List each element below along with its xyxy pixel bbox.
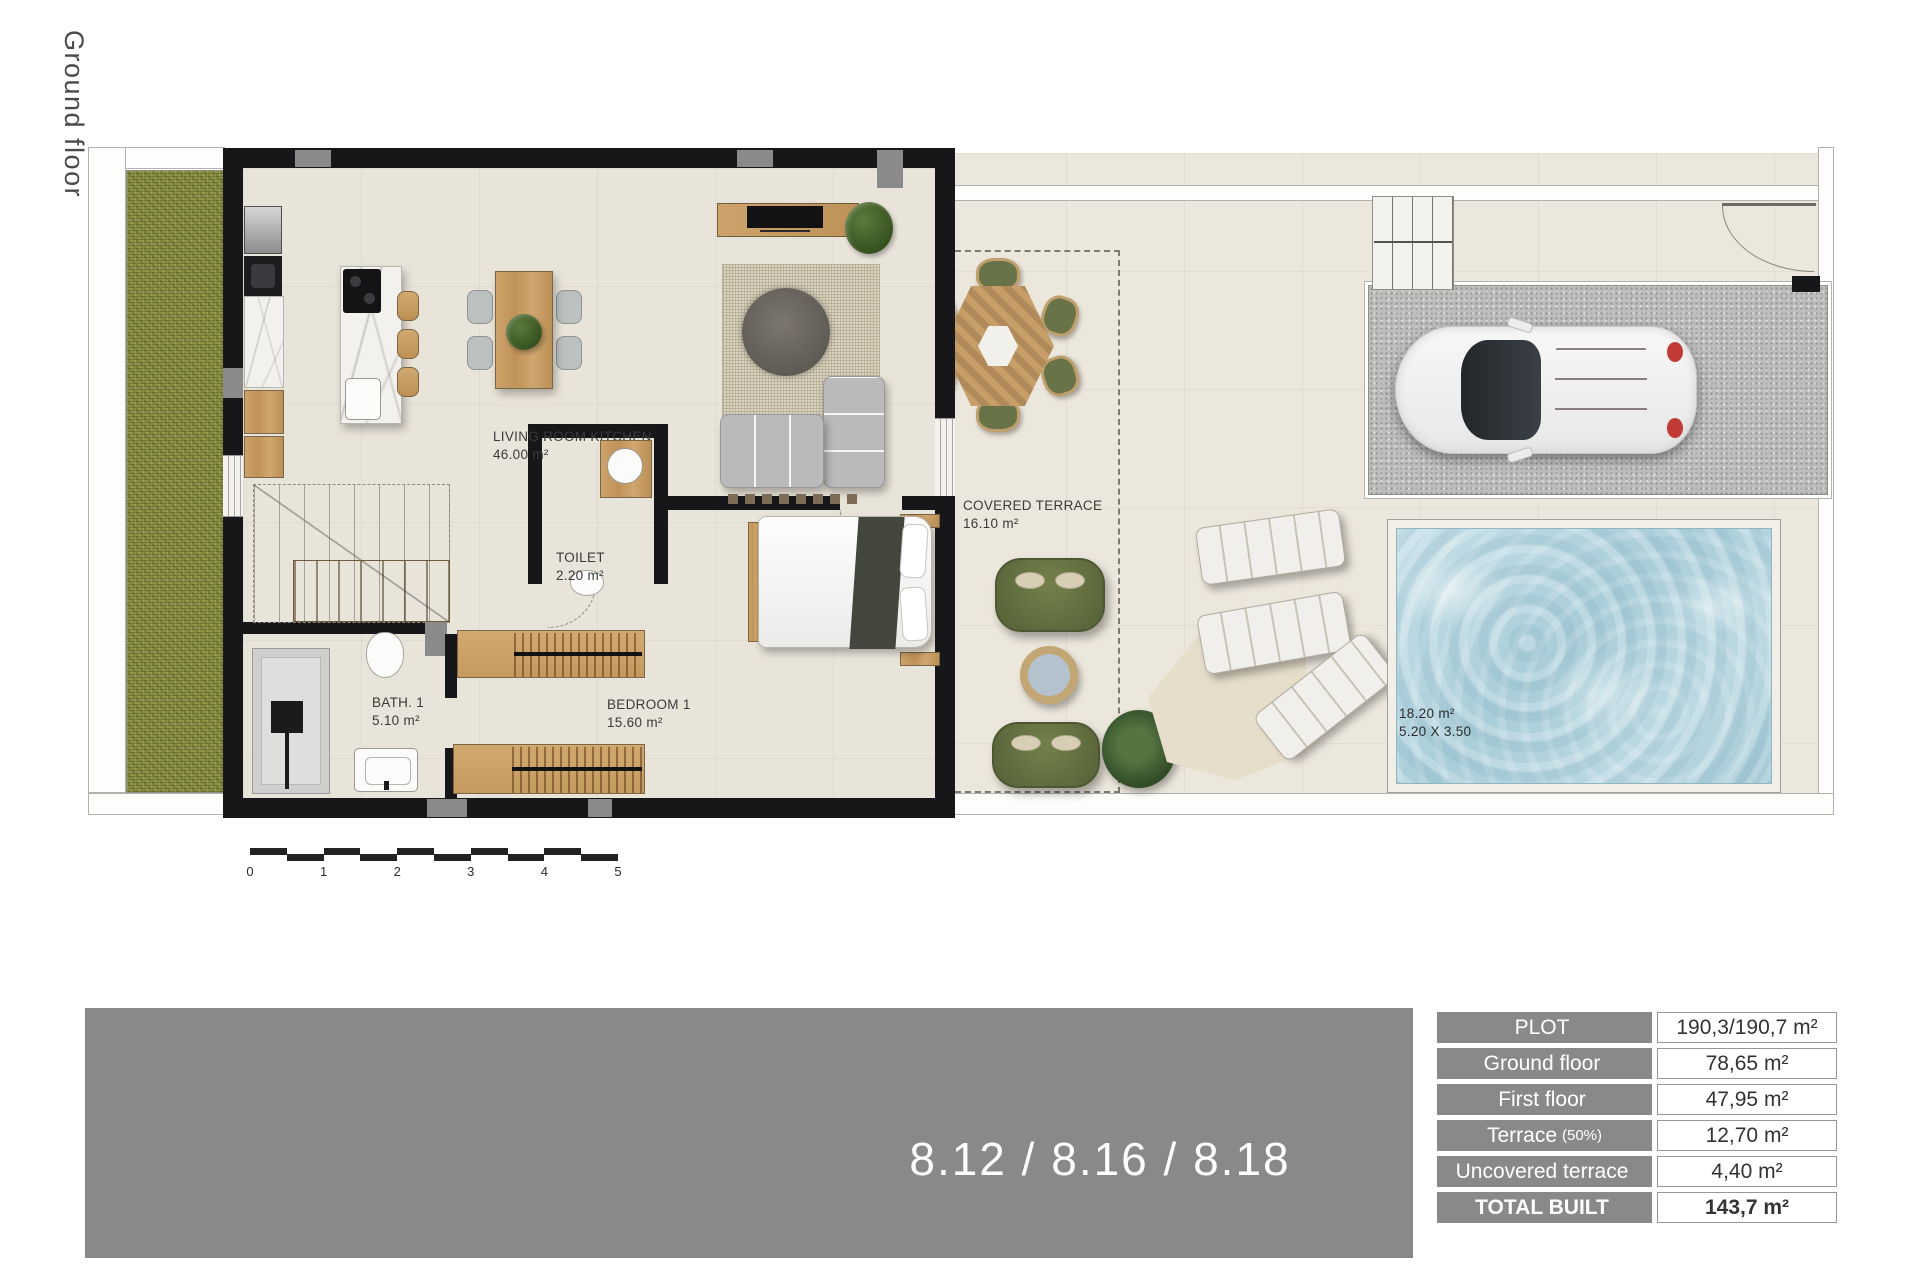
areas-table-value: 190,3/190,7 m² bbox=[1657, 1012, 1837, 1043]
scale-segment bbox=[397, 848, 434, 854]
bed bbox=[758, 516, 932, 648]
swimming-pool bbox=[1388, 520, 1780, 792]
areas-table-value: 143,7 m² bbox=[1657, 1192, 1837, 1223]
dining-chair bbox=[556, 290, 582, 324]
burner bbox=[364, 293, 375, 304]
areas-table-value: 47,95 m² bbox=[1657, 1084, 1837, 1115]
wardrobe-rod bbox=[514, 652, 642, 656]
scale-segment bbox=[324, 848, 361, 854]
pool-label: 18.20 m² 5.20 X 3.50 bbox=[1399, 705, 1471, 740]
wall-post bbox=[425, 622, 447, 656]
areas-table-label: Terrace(50%) bbox=[1437, 1120, 1652, 1151]
side-door bbox=[223, 455, 243, 517]
oven-door bbox=[251, 264, 275, 288]
unit-numbers-panel: 8.12 / 8.16 / 8.18 bbox=[85, 1008, 1413, 1258]
areas-table-value: 4,40 m² bbox=[1657, 1156, 1837, 1187]
floor-plan-page: Ground floor COVERED TERRACE 16.10 m² bbox=[0, 0, 1920, 1280]
tv-stand bbox=[760, 230, 810, 232]
dining-chair bbox=[467, 336, 493, 370]
bath-sink bbox=[354, 748, 418, 792]
scale-segment bbox=[360, 855, 397, 861]
table-plant bbox=[506, 314, 542, 350]
covered-terrace-area: 16.10 m² bbox=[963, 515, 1102, 533]
plot-walkway-left bbox=[88, 147, 126, 793]
scale-tick: 5 bbox=[609, 864, 627, 879]
outdoor-sofa bbox=[992, 722, 1100, 788]
oven bbox=[244, 256, 282, 296]
kitchen-cabinet bbox=[244, 390, 284, 434]
scale-tick: 1 bbox=[315, 864, 333, 879]
wardrobe bbox=[453, 744, 645, 794]
bath-wall-top bbox=[223, 622, 435, 634]
row-label: TOTAL BUILT bbox=[1475, 1196, 1609, 1220]
shower-head bbox=[271, 701, 303, 733]
tv bbox=[747, 206, 823, 228]
scale-segment bbox=[434, 855, 471, 861]
scale-segment bbox=[544, 848, 581, 854]
pillow bbox=[899, 586, 929, 642]
row-label: PLOT bbox=[1515, 1016, 1570, 1040]
garden-grass bbox=[126, 170, 224, 793]
areas-table-label: First floor bbox=[1437, 1084, 1652, 1115]
sofa-cushion bbox=[1051, 735, 1081, 751]
row-label: Ground floor bbox=[1484, 1052, 1601, 1076]
outdoor-coffee-table bbox=[1020, 646, 1078, 704]
areas-table-row: Terrace(50%) 12,70 m² bbox=[1437, 1120, 1839, 1151]
areas-table-label: Uncovered terrace bbox=[1437, 1156, 1652, 1187]
scale-tick: 3 bbox=[462, 864, 480, 879]
exterior-stairs-rail bbox=[1374, 241, 1452, 243]
nightstand bbox=[900, 652, 940, 666]
scale-segment bbox=[581, 855, 618, 861]
toilet-name: TOILET bbox=[556, 549, 605, 567]
bath-label: BATH. 1 5.10 m² bbox=[372, 694, 424, 729]
toilet-area: 2.20 m² bbox=[556, 567, 605, 585]
island-sink bbox=[345, 378, 381, 420]
sliding-door-terrace bbox=[935, 418, 955, 504]
areas-table-label: PLOT bbox=[1437, 1012, 1652, 1043]
toilet-sink bbox=[607, 448, 643, 484]
exterior-stairs bbox=[1372, 196, 1454, 290]
sofa-cushion bbox=[1055, 572, 1085, 589]
car-taillight bbox=[1667, 342, 1683, 362]
toilet-wall-right bbox=[654, 424, 668, 584]
sofa-cushion bbox=[1015, 572, 1045, 589]
decor-pebbles bbox=[728, 494, 860, 504]
covered-terrace-name: COVERED TERRACE bbox=[963, 497, 1102, 515]
areas-table-label: Ground floor bbox=[1437, 1048, 1652, 1079]
bedroom-area: 15.60 m² bbox=[607, 714, 691, 732]
wall-post bbox=[737, 150, 773, 167]
wall-post bbox=[588, 799, 612, 817]
shower-pole bbox=[285, 733, 289, 789]
wardrobe bbox=[457, 630, 645, 678]
scale-segment bbox=[287, 855, 324, 861]
kitchen-cabinet bbox=[244, 436, 284, 478]
areas-table-row: Ground floor 78,65 m² bbox=[1437, 1048, 1839, 1079]
pool-dimensions: 5.20 X 3.50 bbox=[1399, 723, 1471, 741]
scale-tick: 2 bbox=[388, 864, 406, 879]
burner bbox=[350, 276, 361, 287]
round-rug bbox=[742, 288, 830, 376]
sofa-seat bbox=[720, 414, 824, 488]
areas-table-row: Uncovered terrace 4,40 m² bbox=[1437, 1156, 1839, 1187]
car-taillight bbox=[1667, 418, 1683, 438]
scale-segment bbox=[250, 848, 287, 854]
areas-table-label: TOTAL BUILT bbox=[1437, 1192, 1652, 1223]
pool-area: 18.20 m² bbox=[1399, 705, 1471, 723]
bath-name: BATH. 1 bbox=[372, 694, 424, 712]
wall-post bbox=[427, 799, 467, 817]
fridge bbox=[244, 206, 282, 254]
sofa-chaise bbox=[823, 376, 885, 488]
scale-tick: 4 bbox=[535, 864, 553, 879]
bedroom-label: BEDROOM 1 15.60 m² bbox=[607, 696, 691, 731]
dining-chair bbox=[556, 336, 582, 370]
car-interior bbox=[1555, 342, 1647, 438]
dining-chair bbox=[467, 290, 493, 324]
areas-table: PLOT 190,3/190,7 m² Ground floor 78,65 m… bbox=[1437, 1012, 1839, 1223]
scale-segment bbox=[471, 848, 508, 854]
toilet-label: TOILET 2.20 m² bbox=[556, 549, 605, 584]
areas-table-row: First floor 47,95 m² bbox=[1437, 1084, 1839, 1115]
row-label: Terrace bbox=[1487, 1124, 1557, 1148]
bedroom-wall-stub bbox=[902, 496, 955, 510]
areas-table-value: 12,70 m² bbox=[1657, 1120, 1837, 1151]
boundary-wall-post bbox=[1792, 276, 1820, 292]
scale-bar: 0 1 2 3 4 5 bbox=[250, 846, 618, 886]
pillow bbox=[899, 523, 929, 579]
kitchen-counter bbox=[244, 296, 284, 388]
areas-table-value: 78,65 m² bbox=[1657, 1048, 1837, 1079]
sink-tap bbox=[384, 781, 389, 790]
wall-post bbox=[295, 150, 331, 167]
bar-stool bbox=[397, 329, 419, 359]
shower bbox=[252, 648, 330, 794]
wall-post bbox=[877, 150, 903, 188]
outdoor-sofa bbox=[995, 558, 1105, 632]
plant bbox=[845, 202, 893, 254]
stairs-lower-flight bbox=[293, 560, 450, 622]
bath-bedroom-wall-upper bbox=[445, 634, 457, 698]
bar-stool bbox=[397, 291, 419, 321]
scale-segment bbox=[508, 855, 545, 861]
bath-area: 5.10 m² bbox=[372, 712, 424, 730]
car-body bbox=[1395, 326, 1697, 454]
areas-table-row: PLOT 190,3/190,7 m² bbox=[1437, 1012, 1839, 1043]
bed-throw bbox=[849, 517, 904, 649]
areas-table-row-total: TOTAL BUILT 143,7 m² bbox=[1437, 1192, 1839, 1223]
covered-terrace-label: COVERED TERRACE 16.10 m² bbox=[963, 497, 1102, 532]
row-label: First floor bbox=[1498, 1088, 1586, 1112]
car-windshield bbox=[1461, 340, 1541, 440]
car bbox=[1395, 326, 1697, 454]
bath-wc bbox=[366, 632, 404, 678]
scale-tick: 0 bbox=[241, 864, 259, 879]
wardrobe-rod bbox=[512, 767, 642, 771]
bedroom-name: BEDROOM 1 bbox=[607, 696, 691, 714]
page-title: Ground floor bbox=[58, 30, 89, 200]
sofa-cushion bbox=[1011, 735, 1041, 751]
unit-numbers: 8.12 / 8.16 / 8.18 bbox=[860, 1132, 1340, 1186]
row-label: Uncovered terrace bbox=[1456, 1160, 1629, 1184]
wall-post bbox=[223, 368, 243, 398]
row-label-suffix: (50%) bbox=[1562, 1127, 1602, 1144]
bar-stool bbox=[397, 367, 419, 397]
cooktop bbox=[343, 269, 381, 313]
